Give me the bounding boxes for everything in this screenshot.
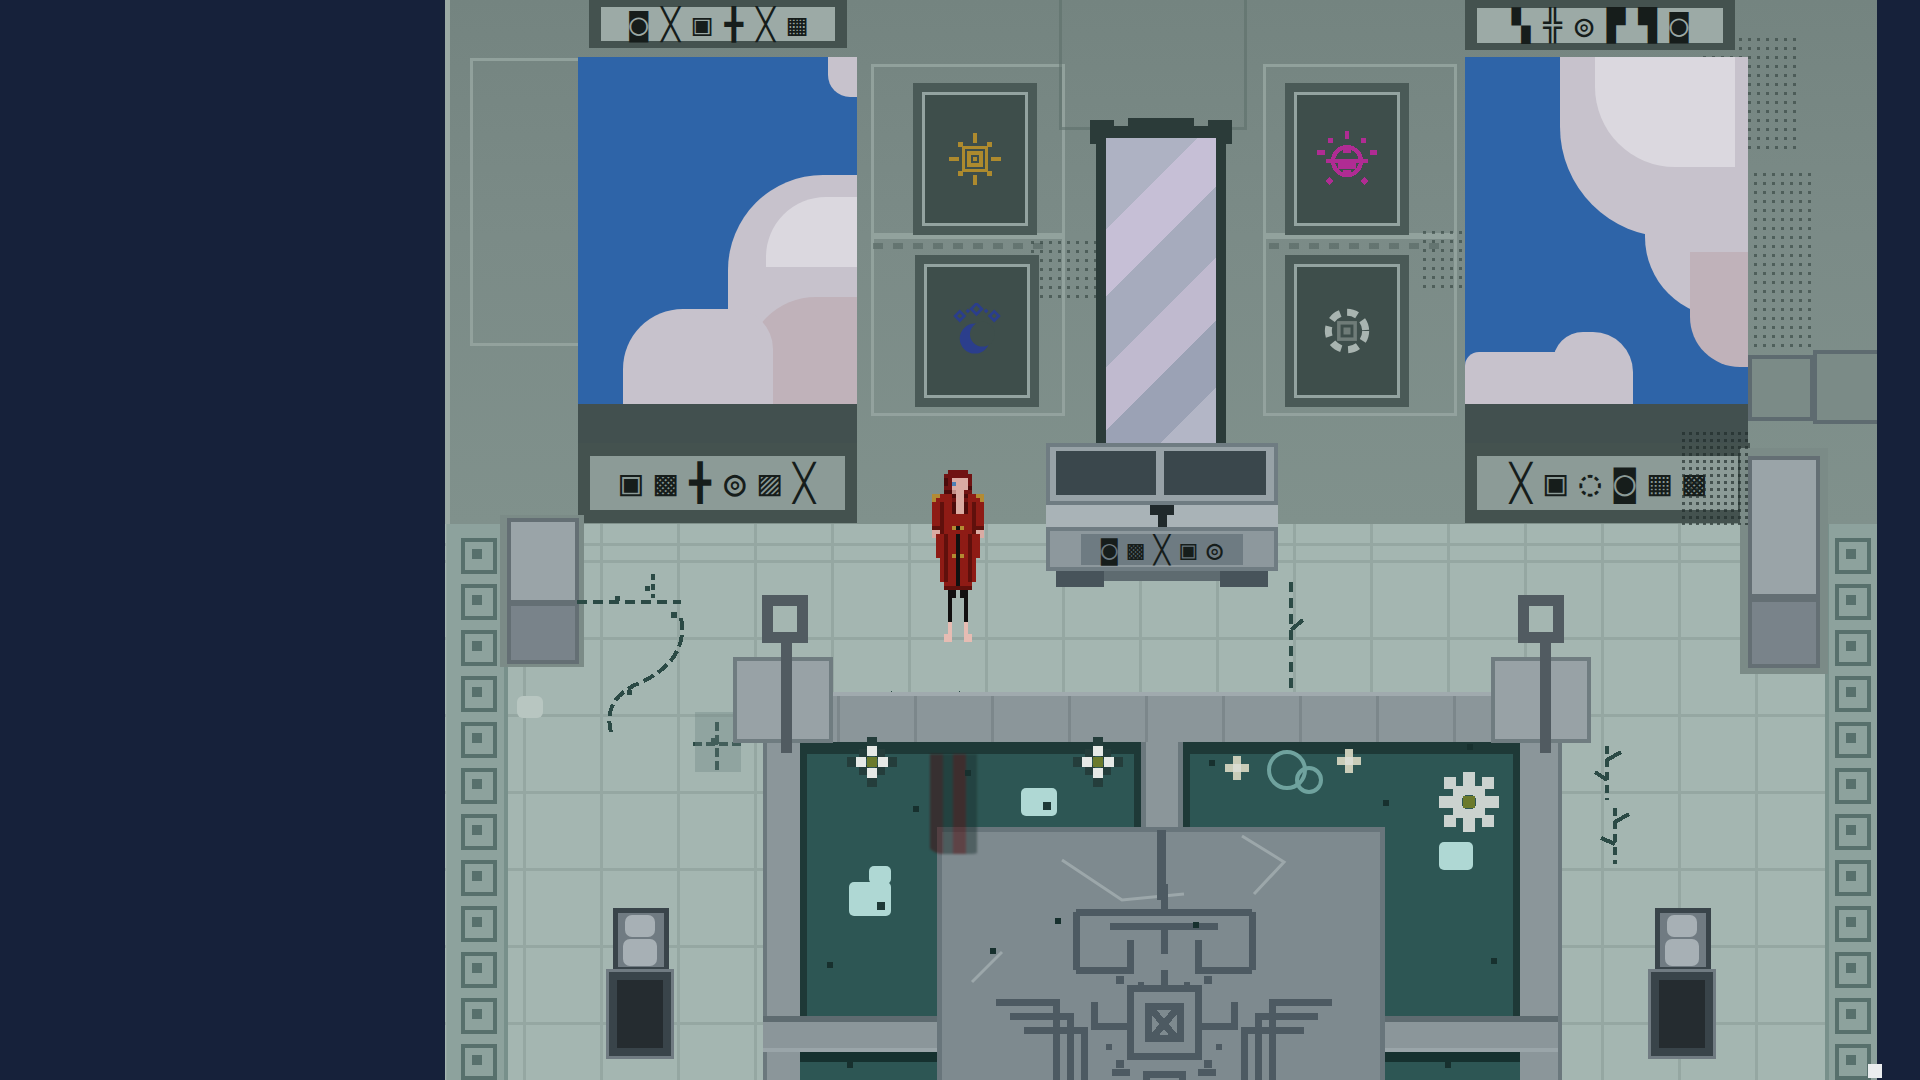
pool-speck: [1193, 922, 1199, 928]
right-pilaster-panel: [1748, 456, 1820, 598]
character-reflection: [925, 754, 989, 854]
pool-speck: [1209, 760, 1215, 766]
left-pilaster-panel: [507, 602, 579, 664]
left-sky-window: [578, 57, 857, 404]
altar-keyhole-stem: [1158, 513, 1167, 528]
labyrinth-mosaic: [990, 884, 1338, 1080]
right-sky-window: [1465, 57, 1748, 404]
pool-speck: [913, 806, 919, 812]
moon-banner: [915, 255, 1039, 407]
desktop-background: { "meta": { "app": "pixel-art-adventure-…: [0, 0, 1920, 1080]
pool-speck: [1491, 958, 1497, 964]
edge-square-motif: [1835, 768, 1871, 804]
sun-rune-icon: [949, 133, 1001, 185]
edge-square-motif: [461, 768, 497, 804]
edge-square-motif: [1835, 630, 1871, 666]
vine-decal: [575, 572, 750, 797]
pool-pad: [1439, 842, 1473, 870]
wall-panel-outline: [470, 58, 586, 346]
cloud: [828, 57, 857, 97]
altar-foot: [1220, 571, 1268, 587]
wall-panel-outline: [1059, 0, 1247, 130]
pool-pad: [1021, 788, 1057, 816]
altar-glyphs: ◙▩╳▣◎: [1081, 534, 1242, 565]
tall-mirror[interactable]: [1090, 116, 1232, 472]
lower-right-pool: [1385, 1052, 1520, 1080]
edge-square-motif: [1835, 538, 1871, 574]
frieze-glyphs: ▚╬◎▛▜◙: [1499, 10, 1702, 41]
floor-moss-patch: [1680, 430, 1750, 525]
ring-banner: [1285, 255, 1409, 407]
altar-foot: [1056, 571, 1104, 587]
vine-decal: [1585, 746, 1633, 866]
walkway-bottom-left: [763, 1016, 937, 1052]
right-pillar-post: [1540, 641, 1551, 753]
plaza-connector-line: [1157, 830, 1166, 900]
edge-square-motif: [1835, 952, 1871, 988]
edge-square-motif: [461, 584, 497, 620]
edge-square-motif: [461, 952, 497, 988]
pool-snowflake: [1463, 796, 1475, 808]
cursor-pixel: [1868, 1064, 1882, 1078]
window-sill: [578, 404, 857, 443]
cloud: [623, 309, 773, 404]
pool-speck: [1467, 744, 1473, 750]
frieze-top-left: ◙╳▣╋╳▦: [589, 0, 847, 48]
pool-speck-light: [517, 696, 543, 718]
altar-lid-panel: [1056, 451, 1156, 495]
pool-speck: [827, 962, 833, 968]
pool-bubble: [1295, 766, 1323, 794]
pool-mini-flower: [1345, 757, 1353, 765]
edge-square-motif: [461, 722, 497, 758]
pool-mini-flower: [1233, 764, 1241, 772]
pool-speck: [847, 1062, 853, 1068]
mirror-frame: [1096, 126, 1226, 462]
wall-brick: [1748, 355, 1814, 421]
left-pedestal: [608, 908, 673, 1058]
ring-rune-icon: [1319, 303, 1375, 359]
right-pedestal: [1650, 908, 1715, 1058]
lower-left-pool: [800, 1052, 937, 1080]
frieze-mid-left: ▣▩╋◎▨╳: [578, 443, 857, 523]
walkway-center: [1141, 742, 1183, 834]
pool-speck: [965, 770, 971, 776]
pool-speck: [1383, 800, 1389, 806]
frieze-glyphs: ▣▩╋◎▨╳: [607, 465, 828, 501]
wall-dash-texture: [873, 243, 1053, 249]
altar-lid-panel: [1164, 451, 1266, 495]
mirror-glass: [1106, 138, 1216, 446]
edge-square-motif: [1835, 1044, 1871, 1080]
frieze-top-right: ▚╬◎▛▜◙: [1465, 0, 1735, 50]
wall-left-edge-highlight: [445, 0, 450, 524]
red-robed-figure-sprite: [920, 470, 996, 642]
right-pilaster-panel: [1748, 598, 1820, 668]
cloud: [1553, 332, 1633, 404]
scarab-rune-icon: [1317, 131, 1377, 187]
scarab-banner: [1285, 83, 1409, 235]
sun-banner: [913, 83, 1037, 235]
altar-chest[interactable]: ◙▩╳▣◎: [1046, 443, 1278, 587]
edge-square-motif: [1835, 584, 1871, 620]
edge-square-motif: [1835, 676, 1871, 712]
pool-flower8: [1093, 757, 1103, 767]
edge-square-motif: [1835, 814, 1871, 850]
edge-square-motif: [461, 814, 497, 850]
edge-square-motif: [461, 676, 497, 712]
pool-speck: [1055, 918, 1061, 924]
wall-brick: [1813, 350, 1877, 424]
edge-square-motif: [1835, 906, 1871, 942]
moon-rune-icon: [949, 303, 1005, 359]
edge-square-motif: [461, 860, 497, 896]
wall-moss-patch: [1751, 170, 1811, 350]
right-pillar-ring: [1518, 595, 1564, 643]
pool-pad: [849, 882, 891, 916]
edge-square-motif: [461, 630, 497, 666]
edge-square-motif: [1835, 722, 1871, 758]
walkway-bottom-right: [1385, 1016, 1558, 1052]
cloud-shadow: [1690, 252, 1748, 367]
edge-square-motif: [461, 906, 497, 942]
pool-speck: [990, 948, 996, 954]
left-pillar-ring: [762, 595, 808, 643]
pool-speck: [1445, 1062, 1451, 1068]
edge-square-motif: [461, 1044, 497, 1080]
frieze-glyphs: ◙╳▣╋╳▦: [617, 9, 820, 40]
left-pilaster-panel: [507, 518, 579, 604]
pool-flower8: [867, 757, 877, 767]
edge-square-motif: [1835, 860, 1871, 896]
left-pillar-post: [781, 641, 792, 753]
edge-square-motif: [461, 998, 497, 1034]
edge-square-motif: [461, 538, 497, 574]
game-viewport[interactable]: ◙╳▣╋╳▦ ▚╬◎▛▜◙ ▣▩╋◎▨╳ ╳▣◌◙▦▩: [445, 0, 1877, 1080]
edge-square-motif: [1835, 998, 1871, 1034]
player-character[interactable]: [920, 470, 996, 646]
